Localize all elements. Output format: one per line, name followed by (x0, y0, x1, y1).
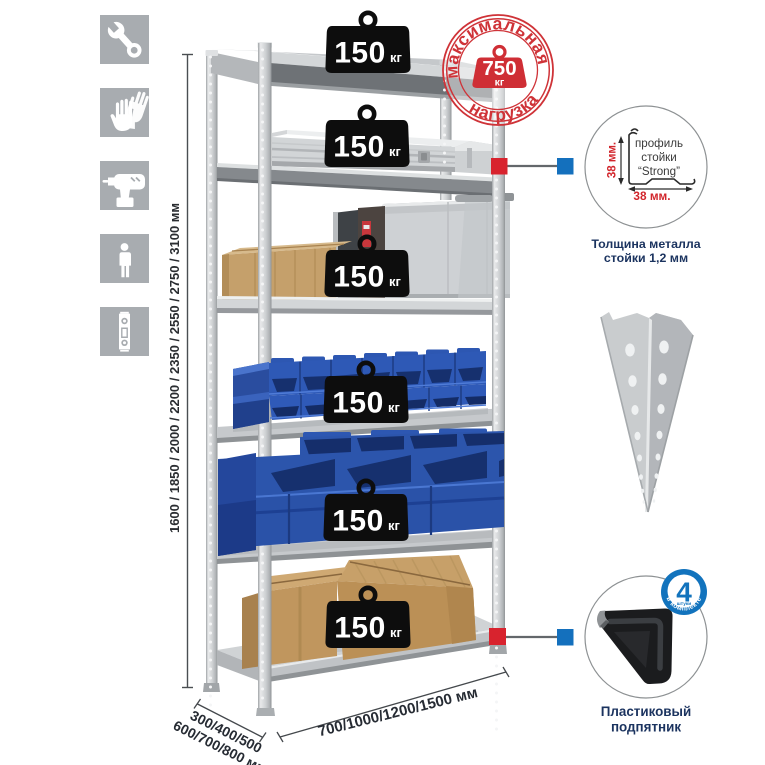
svg-text:кг: кг (495, 77, 505, 89)
svg-text:Толщина металла: Толщина металла (591, 237, 700, 251)
svg-text:подпятник: подпятник (611, 720, 681, 735)
svg-text:стойки: стойки (641, 151, 676, 164)
svg-text:стойки 1,2 мм: стойки 1,2 мм (604, 251, 688, 265)
svg-text:профиль: профиль (635, 137, 683, 150)
svg-text:38 мм.: 38 мм. (633, 189, 670, 203)
svg-text:1600 / 1850 / 2000 / 2200 / 23: 1600 / 1850 / 2000 / 2200 / 2350 / 2550 … (167, 203, 182, 533)
svg-text:38 мм.: 38 мм. (607, 142, 619, 178)
svg-text:Пластиковый: Пластиковый (601, 704, 691, 719)
svg-text:“Strong”: “Strong” (638, 165, 680, 178)
